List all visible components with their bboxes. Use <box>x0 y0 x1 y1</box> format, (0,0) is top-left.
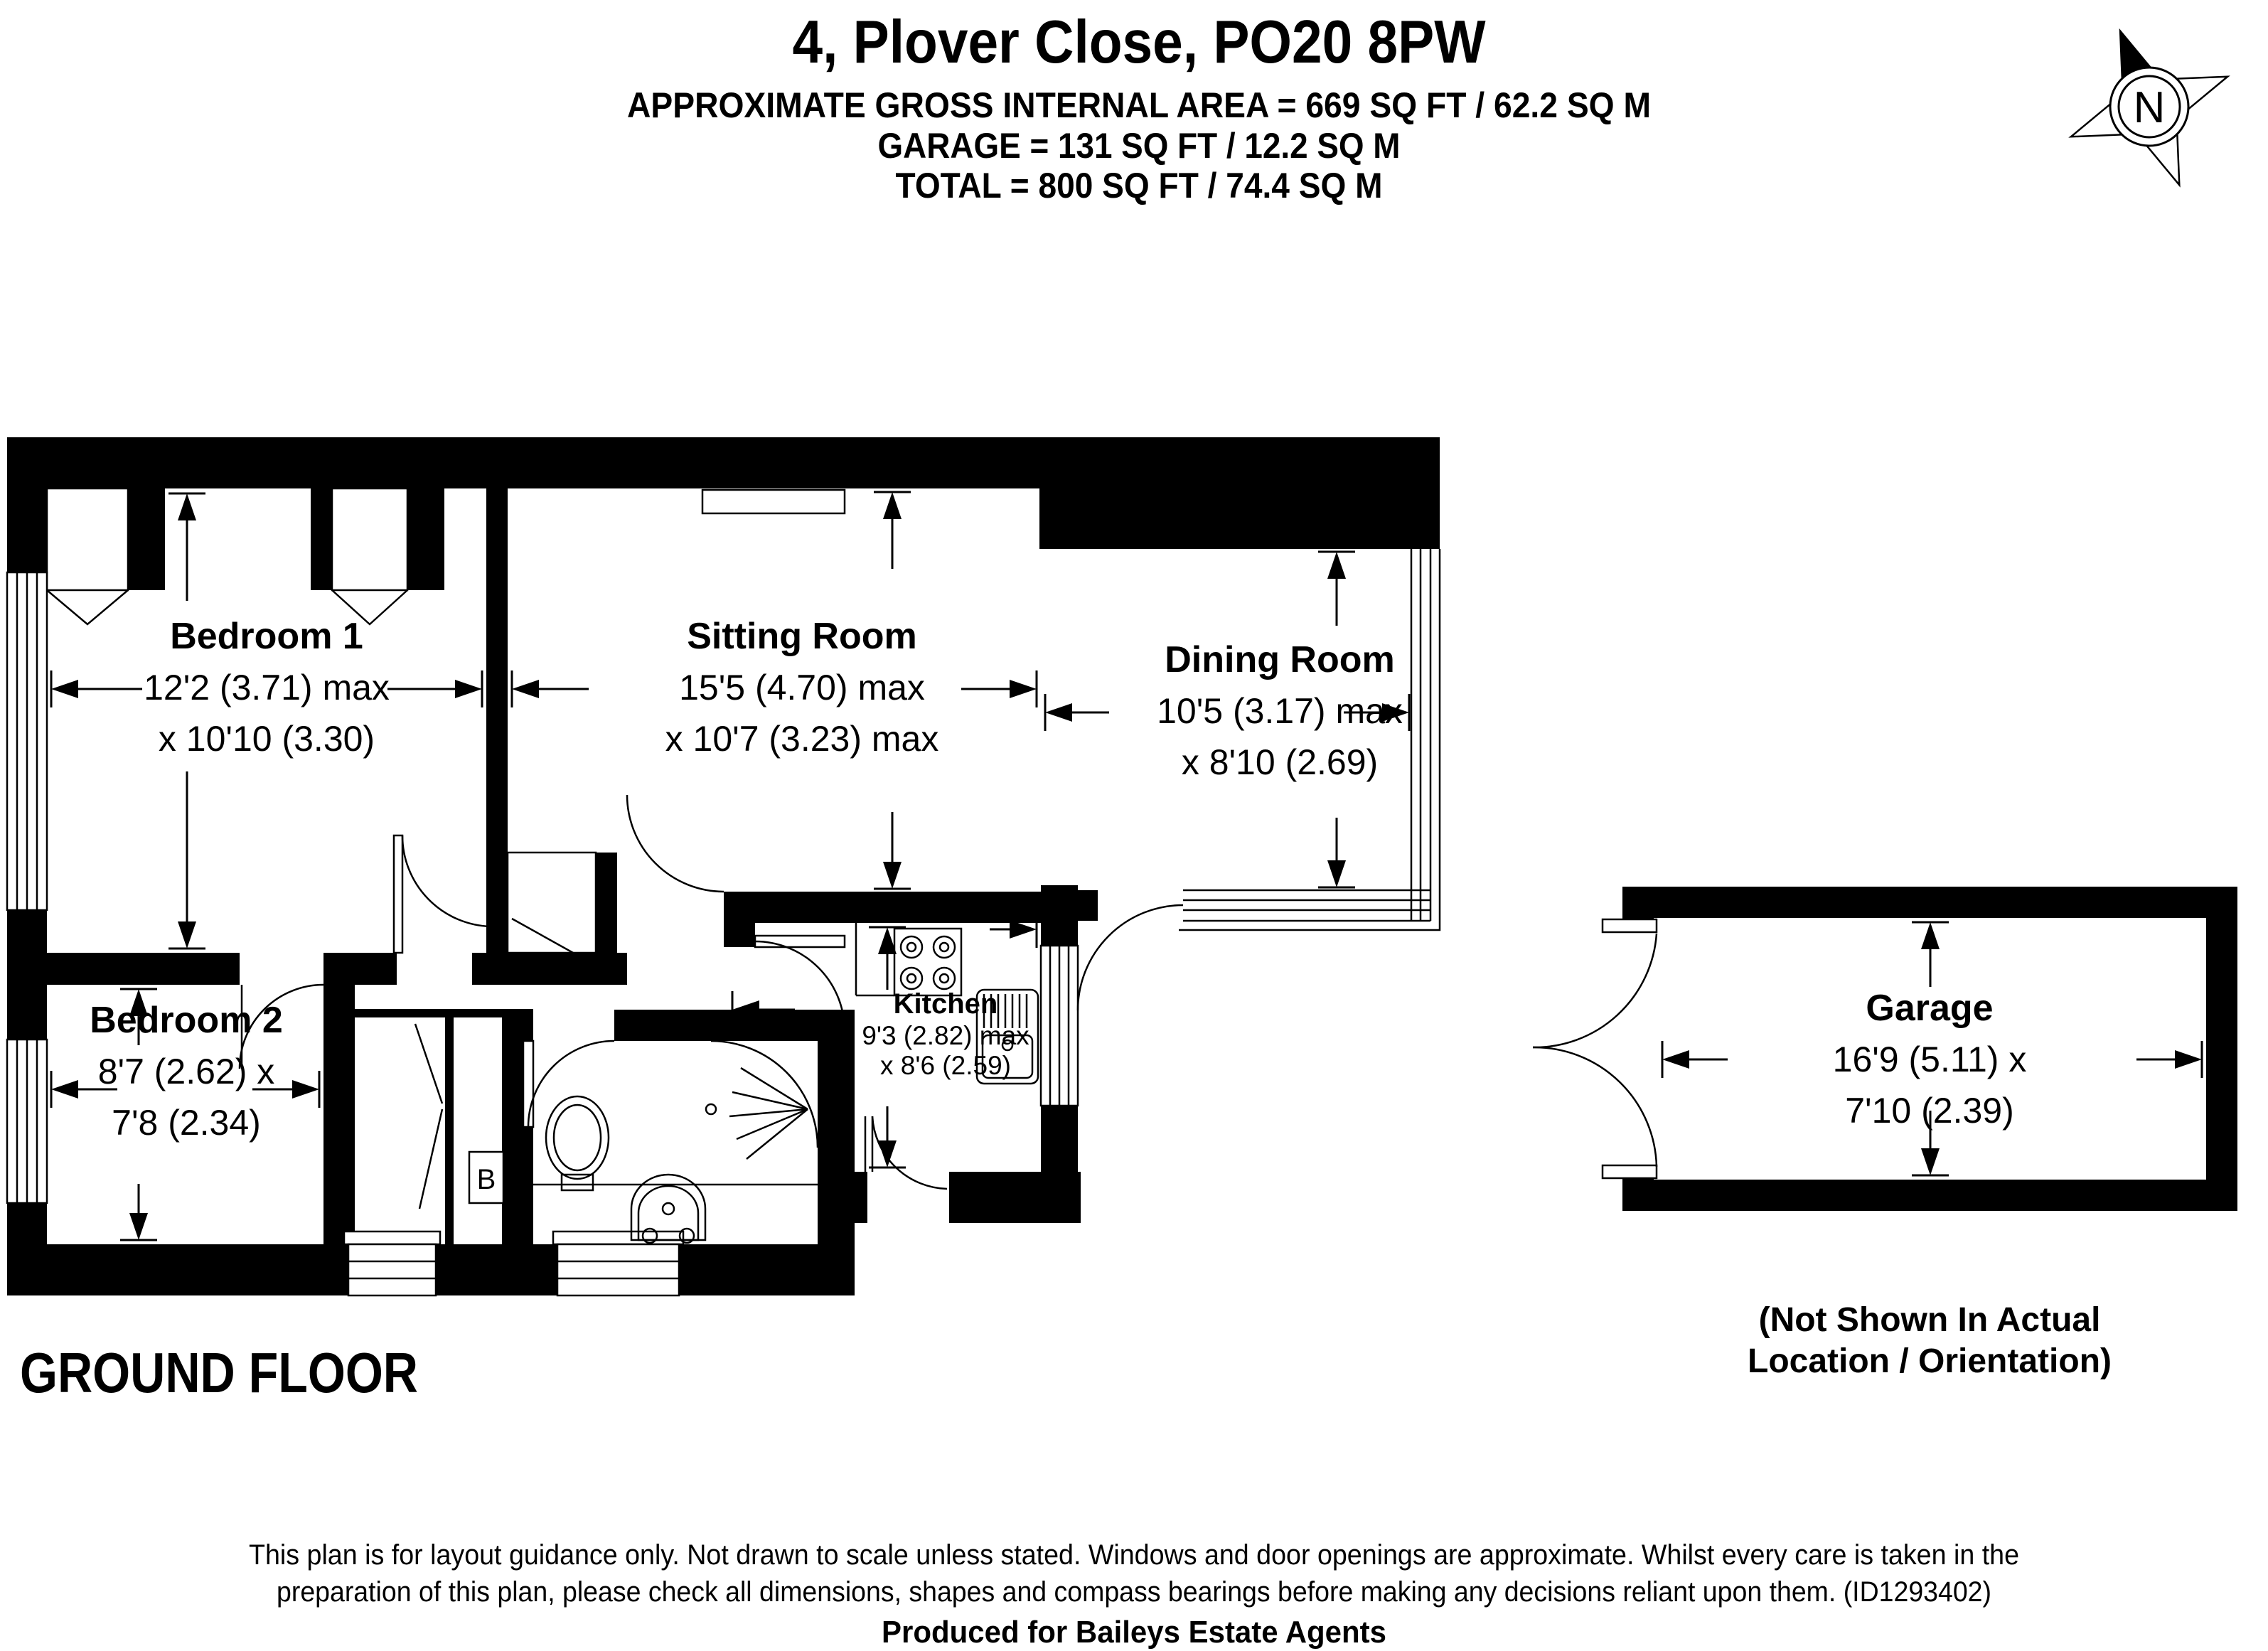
disclaimer-line2: preparation of this plan, please check a… <box>277 1576 1991 1608</box>
bathroom-door-arc-icon <box>528 1041 614 1127</box>
garage-label: Garage 16'9 (5.11) x 7'10 (2.39) <box>1833 988 2027 1131</box>
garage-dim2: 7'10 (2.39) <box>1845 1091 2013 1131</box>
bedroom2-label: Bedroom 2 8'7 (2.62) x 7'8 (2.34) <box>90 1000 283 1143</box>
sitting-dim1: 15'5 (4.70) max <box>679 668 925 707</box>
window-icon <box>332 488 407 590</box>
dining-glazing <box>1179 549 1440 930</box>
compass-icon: N <box>2041 0 2258 215</box>
footer: This plan is for layout guidance only. N… <box>249 1539 2019 1650</box>
bedroom2-name: Bedroom 2 <box>90 1000 283 1041</box>
kitchen-dim1: 9'3 (2.82) max <box>862 1021 1029 1050</box>
dining-dim1: 10'5 (3.17) max <box>1157 691 1403 731</box>
gross-internal-area: APPROXIMATE GROSS INTERNAL AREA = 669 SQ… <box>627 85 1651 125</box>
wall-window-stub <box>311 488 332 590</box>
window-icon <box>344 1231 440 1295</box>
wall-bedroom2-right <box>323 985 355 1244</box>
garage-note-line2: Location / Orientation) <box>1748 1342 2112 1380</box>
bedroom1-door-arc-icon <box>402 835 491 926</box>
hob-icon <box>894 929 961 995</box>
shower-icon <box>706 1041 829 1159</box>
bedroom1-dim1: 12'2 (3.71) max <box>144 668 390 707</box>
total-area: TOTAL = 800 SQ FT / 74.4 SQ M <box>896 166 1383 205</box>
chimney-breast <box>702 490 845 513</box>
bedroom1-label: Bedroom 1 12'2 (3.71) max x 10'10 (3.30) <box>144 616 390 759</box>
garage-note-line1: (Not Shown In Actual <box>1759 1301 2101 1339</box>
header: 4, Plover Close, PO20 8PW APPROXIMATE GR… <box>627 9 1651 205</box>
garage-dim1: 16'9 (5.11) x <box>1833 1040 2027 1079</box>
compass-north-label: N <box>2134 83 2166 132</box>
wall-left <box>7 910 47 1040</box>
closet-bifold-leaf <box>415 1024 442 1104</box>
bedroom1-dim2: x 10'10 (3.30) <box>159 719 375 759</box>
wall-kitchen-right <box>1041 885 1078 946</box>
front-door-leaf <box>755 936 845 947</box>
garage-door-frame <box>1603 919 1657 932</box>
sitting-room-label: Sitting Room 15'5 (4.70) max x 10'7 (3.2… <box>665 616 939 759</box>
wall-kitchen-right <box>1041 1106 1078 1223</box>
garage-wall-bottom <box>1622 1180 2237 1211</box>
wall-window-stub <box>128 488 165 590</box>
disclaimer-line1: This plan is for layout guidance only. N… <box>249 1539 2019 1571</box>
sitting-door-arc-icon <box>627 795 724 892</box>
door-opening <box>867 1172 949 1223</box>
window-icon <box>1041 946 1078 1106</box>
wall-top-dining <box>1039 488 1440 549</box>
window-icon <box>7 572 47 910</box>
wall-stub-dining-door <box>1078 890 1098 921</box>
house-walls <box>7 437 1440 1295</box>
garage-door-frame <box>1603 1165 1657 1178</box>
wall-bathroom-top <box>614 1010 818 1041</box>
wall-left <box>7 437 47 576</box>
wall-bathroom-right <box>818 1010 855 1244</box>
wall-bedroom1-bottom <box>323 953 397 985</box>
hall-cupboard <box>508 853 596 953</box>
wall-window-stub <box>407 488 444 590</box>
toilet-icon <box>546 1096 609 1190</box>
wall-closet-divider <box>445 1017 454 1244</box>
bedroom1-name: Bedroom 1 <box>170 616 363 657</box>
wall-stub <box>724 923 755 947</box>
sitting-dim2: x 10'7 (3.23) max <box>665 719 939 759</box>
bedroom2-dim1: 8'7 (2.62) x <box>98 1052 275 1091</box>
dining-door-arc-icon <box>1078 905 1183 1010</box>
wall-kitchen-top <box>852 892 1041 923</box>
floor-label: GROUND FLOOR <box>20 1341 418 1404</box>
bedroom2-dim2: 7'8 (2.34) <box>112 1103 261 1143</box>
bedroom1-door-leaf <box>394 835 402 953</box>
window-icon <box>553 1231 683 1295</box>
producer-credit: Produced for Baileys Estate Agents <box>882 1615 1386 1650</box>
garage-door-arc-icon <box>1533 1047 1657 1167</box>
kitchen-name: Kitchen <box>894 988 998 1020</box>
boiler-label: B <box>477 1164 496 1195</box>
garage-area: GARAGE = 131 SQ FT / 12.2 SQ M <box>878 126 1401 166</box>
floorplan-page: 4, Plover Close, PO20 8PW APPROXIMATE GR… <box>0 0 2268 1651</box>
property-title: 4, Plover Close, PO20 8PW <box>793 9 1487 76</box>
window-icon <box>47 488 128 590</box>
kitchen-dim2: x 8'6 (2.59) <box>880 1051 1011 1080</box>
garage-name: Garage <box>1866 988 1993 1029</box>
wall-cupboard-base <box>472 953 627 985</box>
sitting-name: Sitting Room <box>687 616 917 657</box>
wall-top <box>7 437 1440 488</box>
window-casement-icon <box>47 590 128 624</box>
wall-sitting-bottom <box>724 892 852 923</box>
garage-wall-top <box>1622 887 2237 918</box>
closet-bifold-leaf <box>419 1109 442 1209</box>
dining-dim2: x 8'10 (2.69) <box>1182 742 1378 782</box>
garage-door-arc-icon <box>1533 934 1657 1047</box>
dining-room-label: Dining Room 10'5 (3.17) max x 8'10 (2.69… <box>1157 639 1403 782</box>
garage-note: (Not Shown In Actual Location / Orientat… <box>1748 1301 2112 1380</box>
garage-wall-right <box>2206 887 2237 1211</box>
dining-name: Dining Room <box>1165 639 1395 680</box>
wall-bedroom1-bottom <box>47 953 240 985</box>
bathroom-door-leaf <box>523 1041 533 1127</box>
wall-closet-top <box>355 1009 533 1017</box>
window-icon <box>7 1040 47 1203</box>
